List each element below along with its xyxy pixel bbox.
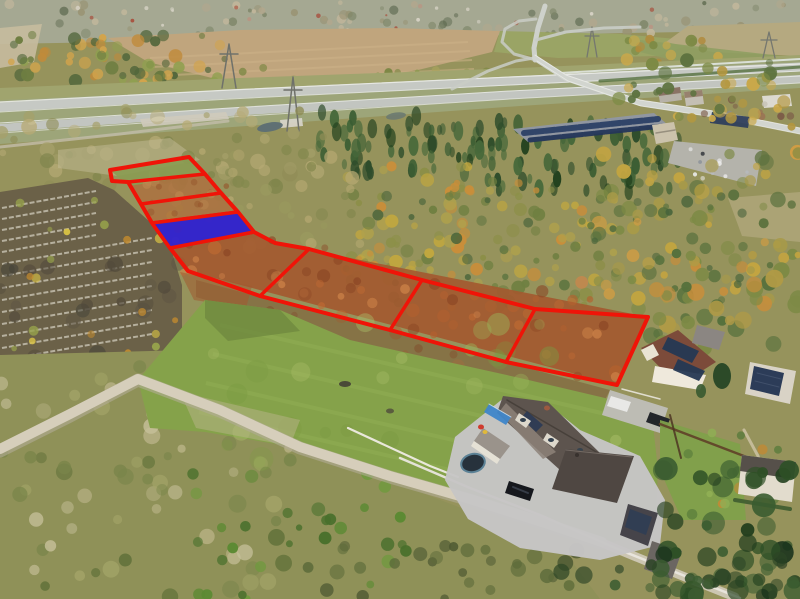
conifer-tree [713, 363, 731, 389]
play-toy-2 [483, 430, 488, 434]
conifer-tree-2 [696, 384, 706, 398]
wing-chimney [575, 453, 579, 457]
dormer-window-2 [548, 438, 554, 442]
chimney [544, 406, 550, 411]
scene-layer [0, 0, 800, 599]
meadow-object [339, 381, 351, 387]
aerial-photo [0, 0, 800, 599]
play-toy [478, 425, 484, 430]
listing-photo [0, 0, 800, 599]
dormer-window [520, 418, 526, 422]
meadow-object-2 [386, 409, 394, 414]
